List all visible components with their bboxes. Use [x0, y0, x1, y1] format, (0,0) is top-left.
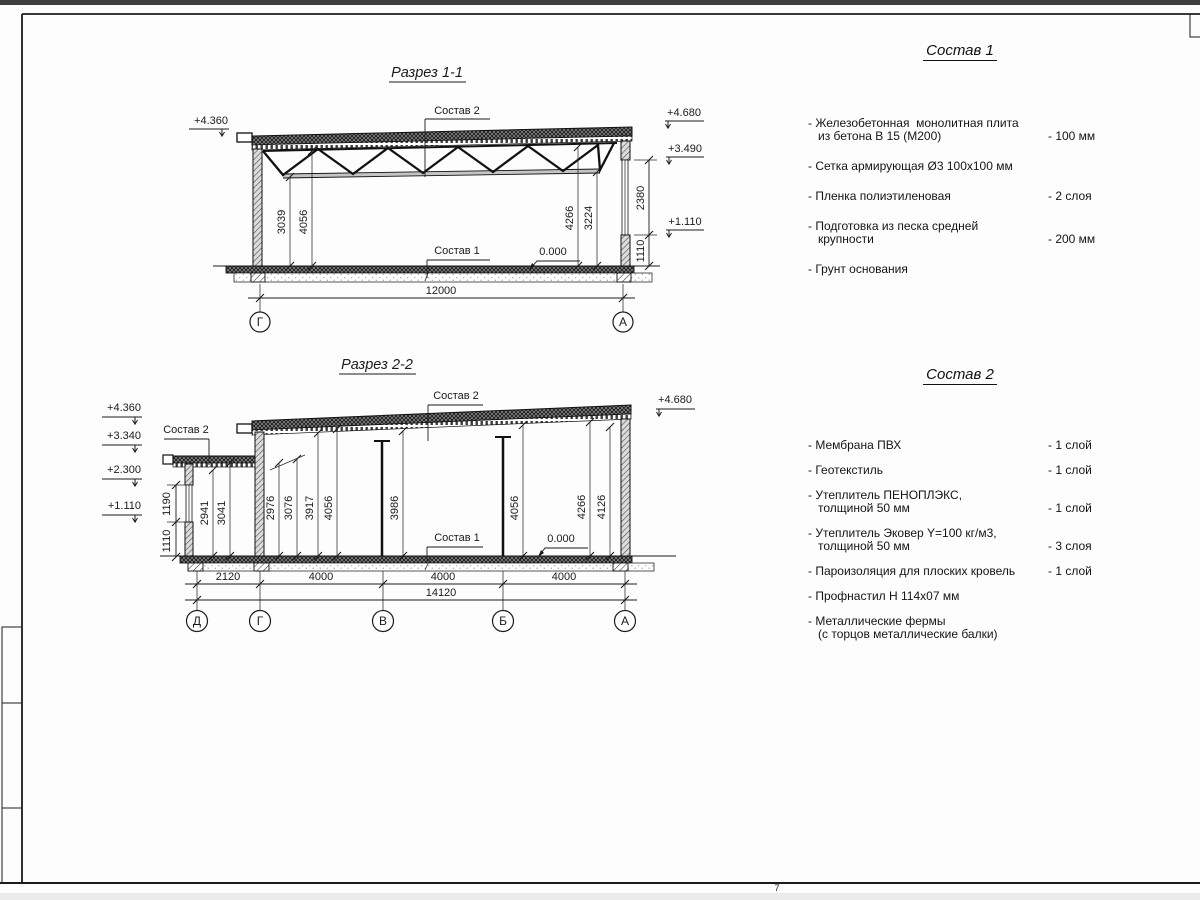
elevation-mark: +1.110 [668, 216, 701, 228]
leader-label-sostav1: Состав 1 [434, 245, 480, 257]
leader-label-sostav2: Состав 2 [434, 105, 480, 117]
dim-2941: 2941 [199, 501, 211, 525]
elevation-arrow [666, 121, 671, 128]
elevation-mark: +2.300 [107, 464, 141, 476]
dim-14120: 14120 [426, 587, 457, 599]
wall-D-top [185, 464, 193, 485]
item-name: - Сетка армирующая Ø3 100х100 мм [808, 160, 1048, 173]
sand-bed [234, 273, 652, 282]
item-name: - Подготовка из песка средней крупности [808, 220, 1048, 246]
dim-1110: 1110 [635, 240, 647, 263]
elevation-arrow [133, 445, 138, 452]
dim-4126: 4126 [596, 495, 608, 519]
dim-4000-1: 4000 [309, 571, 333, 583]
dim-1190: 1190 [161, 492, 173, 516]
dim-3039: 3039 [276, 210, 288, 234]
list-item: - Профнастил Н 114х07 мм [808, 590, 1110, 603]
item-name: - Грунт основания [808, 263, 1048, 276]
elevation-mark: +4.360 [194, 115, 228, 127]
dim-4056-a: 4056 [323, 496, 335, 520]
dim-2380: 2380 [635, 186, 647, 210]
margin-box-1 [2, 627, 22, 703]
elevation-arrow [667, 157, 672, 164]
section-title: Разрез 2-2 [341, 357, 413, 373]
sostav1-title-text: Состав 1 [923, 42, 997, 61]
item-value: - 1 слой [1048, 565, 1092, 578]
dim-4266: 4266 [576, 495, 588, 519]
footing-right [617, 273, 631, 282]
item-name: - Утеплитель ПЕНОПЛЭКС, толщиной 50 мм [808, 489, 1048, 515]
margin-box-3 [2, 808, 22, 883]
elevation-mark: +4.680 [658, 394, 692, 406]
scan-edge-top [0, 0, 1200, 5]
axis-letter: Д [193, 614, 201, 628]
leader-label-sostav1: Состав 1 [434, 532, 480, 544]
wall-right-top [621, 141, 630, 160]
dim-3224: 3224 [583, 206, 595, 230]
item-name: - Металлические фермы (с торцов металлич… [808, 615, 1048, 641]
dim-3041: 3041 [216, 501, 228, 525]
list-item: - Подготовка из песка средней крупности … [808, 220, 1110, 246]
list-item: - Геотекстиль - 1 слой [808, 464, 1110, 477]
dim-4000-2: 4000 [431, 571, 455, 583]
elevation-arrow [657, 409, 662, 416]
axis-letter: А [619, 315, 627, 329]
scan-edge-bottom [0, 893, 1200, 900]
list-item: - Пароизоляция для плоских кровель - 1 с… [808, 565, 1110, 578]
annex-roof-slab [173, 456, 264, 463]
roof-plane-mark [270, 455, 305, 470]
wall-D-bottom [185, 522, 193, 558]
item-value: - 1 слой [1048, 439, 1092, 452]
elevation-mark: +3.490 [668, 143, 702, 155]
footing-G [254, 563, 269, 571]
corner-stamp-box [1190, 14, 1200, 37]
item-name: - Утеплитель Эковер Y=100 кг/м3, толщино… [808, 527, 1048, 553]
list-item: - Сетка армирующая Ø3 100х100 мм [808, 160, 1110, 173]
dim-4056: 4056 [298, 210, 310, 234]
dim-2976: 2976 [265, 496, 277, 520]
section-2-2-drawing: Разрез 2-2 Состав 2 Состав 2 [102, 357, 695, 632]
axis-letter: Г [257, 614, 264, 628]
list-item: - Утеплитель Эковер Y=100 кг/м3, толщино… [808, 527, 1110, 553]
dim-12000: 12000 [426, 285, 457, 297]
item-name: - Железобетонная монолитная плита из бет… [808, 117, 1048, 143]
item-value: - 200 мм [1048, 233, 1095, 246]
list-item: - Пленка полиэтиленовая - 2 слоя [808, 190, 1110, 203]
footing-D [188, 563, 203, 571]
section-1-1-drawing: Разрез 1-1 Состав 2 Состав 1 0.000 [189, 65, 704, 332]
elevation-arrow [220, 129, 225, 136]
elevation-arrow [667, 230, 672, 237]
item-value: - 2 слоя [1048, 190, 1092, 203]
axis-letter: В [379, 614, 387, 628]
section-title: Разрез 1-1 [391, 65, 463, 81]
sheet-number: 7 [774, 883, 779, 893]
axis-letter: А [621, 614, 629, 628]
list-item: - Металлические фермы (с торцов металлич… [808, 615, 1110, 641]
item-name: - Геотекстиль [808, 464, 1048, 477]
zero-level: 0.000 [547, 533, 575, 545]
dim-3986: 3986 [389, 496, 401, 520]
list-item: - Мембрана ПВХ - 1 слой [808, 439, 1110, 452]
gutter-box [237, 424, 252, 433]
dim-1110: 1110 [161, 530, 173, 553]
elevation-mark: +4.680 [667, 107, 701, 119]
floor-slab [180, 556, 632, 563]
dim-3917: 3917 [304, 496, 316, 520]
list-item: - Грунт основания [808, 263, 1110, 276]
sostav2-list: - Мембрана ПВХ - 1 слой - Геотекстиль - … [808, 439, 1110, 641]
leader-label-sostav2-low: Состав 2 [163, 424, 209, 436]
dim-4266: 4266 [564, 206, 576, 230]
item-name: - Пленка полиэтиленовая [808, 190, 1048, 203]
item-name: - Профнастил Н 114х07 мм [808, 590, 1048, 603]
dim-4000-3: 4000 [552, 571, 576, 583]
drawing-sheet: 7 Разрез 1-1 Состав 2 Состав 1 0.0 [0, 0, 1200, 900]
footing-left [251, 273, 265, 282]
leader-label-sostav2-high: Состав 2 [433, 390, 479, 402]
dim-4056-b: 4056 [509, 496, 521, 520]
elevation-mark: +3.340 [107, 430, 141, 442]
sostav2-title-text: Состав 2 [923, 366, 997, 385]
sostav1-title: Состав 1 [860, 42, 1060, 59]
elevation-arrow [133, 417, 138, 424]
wall-left [253, 149, 262, 268]
dim-2120: 2120 [216, 571, 240, 583]
item-name: - Мембрана ПВХ [808, 439, 1048, 452]
elevation-mark: +4.360 [107, 402, 141, 414]
elevation-arrow [133, 515, 138, 522]
wall-A [621, 419, 630, 558]
list-item: - Железобетонная монолитная плита из бет… [808, 117, 1110, 143]
dim-3076: 3076 [283, 496, 295, 520]
zero-level: 0.000 [539, 246, 567, 258]
wall-G [255, 432, 264, 558]
annex-gutter-box [163, 455, 173, 464]
gutter-box [237, 133, 252, 142]
zero-leader [539, 548, 588, 556]
sostav1-list: - Железобетонная монолитная плита из бет… [808, 117, 1110, 276]
margin-box-2 [2, 703, 22, 808]
item-value: - 100 мм [1048, 130, 1095, 143]
elevation-arrow [133, 479, 138, 486]
elevation-mark: +1.110 [108, 500, 141, 512]
wall-right-bottom [621, 235, 630, 268]
axis-letter: Г [257, 315, 264, 329]
list-item: - Утеплитель ПЕНОПЛЭКС, толщиной 50 мм -… [808, 489, 1110, 515]
item-value: - 1 слой [1048, 464, 1092, 477]
sostav2-title: Состав 2 [860, 366, 1060, 383]
item-name: - Пароизоляция для плоских кровель [808, 565, 1048, 578]
item-value: - 3 слоя [1048, 540, 1092, 553]
footing-A [613, 563, 628, 571]
item-value: - 1 слой [1048, 502, 1092, 515]
axis-letter: Б [499, 614, 507, 628]
